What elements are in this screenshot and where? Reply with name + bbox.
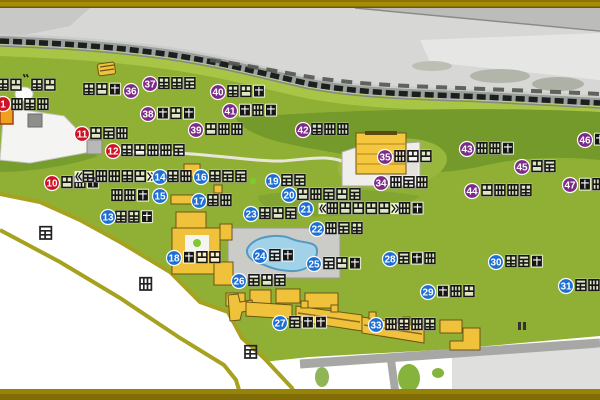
svg-text:43: 43 — [461, 145, 473, 156]
svg-text:26: 26 — [233, 277, 245, 288]
svg-text:11: 11 — [77, 130, 88, 141]
svg-text:47: 47 — [564, 181, 576, 192]
svg-text:38: 38 — [142, 110, 154, 121]
svg-text:34: 34 — [375, 179, 387, 190]
svg-text:19: 19 — [267, 177, 279, 188]
svg-text:46: 46 — [579, 136, 591, 147]
svg-text:42: 42 — [297, 126, 309, 137]
svg-text:27: 27 — [274, 319, 286, 330]
svg-text:10: 10 — [46, 179, 58, 190]
svg-text:31: 31 — [560, 282, 572, 293]
svg-text:23: 23 — [245, 210, 257, 221]
svg-text:12: 12 — [107, 147, 119, 158]
svg-text:33: 33 — [370, 321, 382, 332]
svg-text:41: 41 — [224, 107, 236, 118]
svg-text:25: 25 — [308, 260, 320, 271]
svg-text:30: 30 — [490, 258, 502, 269]
svg-text:36: 36 — [125, 87, 137, 98]
svg-text:40: 40 — [212, 88, 224, 99]
svg-text:21: 21 — [300, 205, 312, 216]
svg-text:29: 29 — [422, 288, 434, 299]
svg-text:24: 24 — [254, 252, 266, 263]
svg-text:18: 18 — [168, 254, 180, 265]
svg-text:15: 15 — [154, 192, 166, 203]
svg-text:37: 37 — [144, 80, 156, 91]
svg-text:13: 13 — [102, 213, 114, 224]
svg-text:35: 35 — [379, 153, 391, 164]
svg-text:20: 20 — [283, 191, 295, 202]
svg-text:22: 22 — [311, 225, 323, 236]
svg-text:1: 1 — [0, 100, 6, 111]
svg-text:39: 39 — [190, 126, 202, 137]
svg-text:16: 16 — [195, 173, 207, 184]
svg-text:45: 45 — [516, 163, 528, 174]
svg-text:14: 14 — [154, 173, 166, 184]
svg-text:28: 28 — [384, 255, 396, 266]
svg-text:44: 44 — [466, 187, 478, 198]
svg-text:17: 17 — [193, 197, 205, 208]
